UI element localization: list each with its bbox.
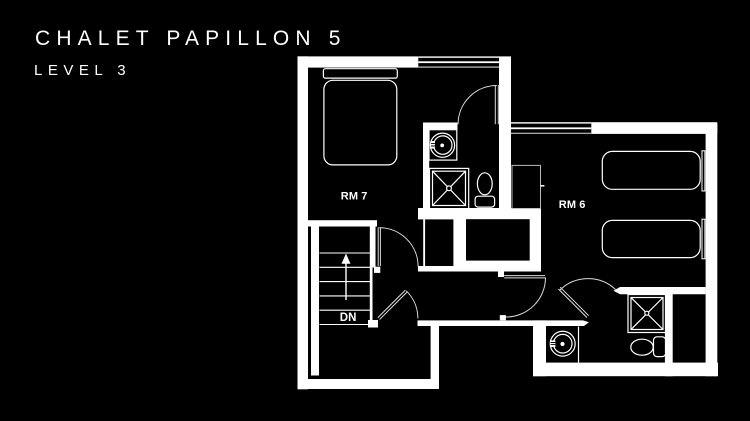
svg-text:RM 6: RM 6 bbox=[559, 199, 586, 211]
svg-text:RM 7: RM 7 bbox=[341, 190, 368, 202]
svg-text:DN: DN bbox=[340, 312, 357, 324]
